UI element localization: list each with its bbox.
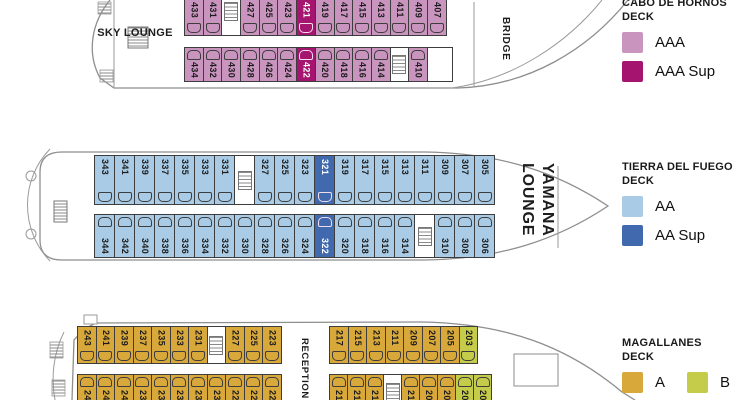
bed-icon bbox=[338, 192, 352, 202]
cabin-number: 209 bbox=[408, 330, 417, 346]
cabin-number: 411 bbox=[395, 2, 404, 18]
bed-icon bbox=[265, 351, 279, 361]
cabin-430: 430 bbox=[221, 47, 241, 82]
cabin-number: 206 bbox=[442, 390, 451, 400]
legend-tierra-del-fuego-deck: TIERRA DEL FUEGO DECK AA AA Sup bbox=[622, 160, 750, 246]
bed-icon bbox=[135, 351, 149, 361]
cabin-344: 344 bbox=[94, 214, 115, 258]
cabin-313: 313 bbox=[394, 155, 415, 205]
legend-title-line2: DECK bbox=[622, 11, 654, 23]
bed-icon bbox=[478, 217, 492, 227]
cabin-number: 213 bbox=[371, 330, 380, 346]
ship-deck-plan: 433431427425423421419417415413411409407 … bbox=[0, 0, 750, 400]
bed-icon bbox=[458, 217, 472, 227]
cabin-422: 422 bbox=[296, 47, 316, 82]
cabin-number: 234 bbox=[175, 390, 184, 400]
bed-icon bbox=[172, 351, 186, 361]
cabin-212: 212 bbox=[365, 374, 384, 400]
cabin-433: 433 bbox=[184, 0, 204, 36]
bed-icon bbox=[299, 50, 313, 60]
cabo-deck-port-cabin-row: 433431427425423421419417415413411409407 bbox=[185, 0, 447, 36]
legend-magallanes-deck: MAGALLANES DECK A B bbox=[622, 336, 750, 393]
cabin-number: 422 bbox=[301, 62, 310, 78]
bed-icon bbox=[368, 377, 382, 387]
cabin-231: 231 bbox=[188, 326, 208, 364]
cabin-307: 307 bbox=[454, 155, 475, 205]
cabin-number: 204 bbox=[460, 390, 469, 400]
cabin-321: 321 bbox=[314, 155, 335, 205]
bed-icon bbox=[350, 377, 364, 387]
cabin-230: 230 bbox=[207, 374, 227, 400]
cabin-number: 414 bbox=[376, 62, 385, 78]
bed-icon bbox=[178, 217, 192, 227]
cabin-number: 208 bbox=[424, 390, 433, 400]
cabin-241: 241 bbox=[96, 326, 116, 364]
stairs-icon bbox=[392, 55, 406, 74]
bed-icon bbox=[228, 377, 242, 387]
cabin-217: 217 bbox=[329, 326, 349, 364]
cabin-225: 225 bbox=[244, 326, 264, 364]
cabin-340: 340 bbox=[134, 214, 155, 258]
cabin-331: 331 bbox=[214, 155, 235, 205]
cabin-326: 326 bbox=[274, 214, 295, 258]
cabin-318: 318 bbox=[354, 214, 375, 258]
cabin-339: 339 bbox=[134, 155, 155, 205]
cabin-number: 211 bbox=[390, 330, 399, 346]
cabin-number: 324 bbox=[300, 238, 309, 254]
cabin-number: 306 bbox=[480, 238, 489, 254]
magallanes-deck-port-cabin-row-fwd: 217215213211209207205203 bbox=[330, 326, 478, 364]
legend-title-line2: DECK bbox=[622, 175, 654, 187]
cabin-323: 323 bbox=[294, 155, 315, 205]
bed-icon bbox=[374, 23, 388, 33]
bed-icon bbox=[187, 23, 201, 33]
cabin-327: 327 bbox=[254, 155, 275, 205]
legend-entry-aa-sup: AA Sup bbox=[622, 225, 750, 246]
cabin-number: 423 bbox=[283, 2, 292, 18]
cabin-208: 208 bbox=[419, 374, 438, 400]
cabin-number: 230 bbox=[212, 390, 221, 400]
cabin-203: 203 bbox=[459, 326, 479, 364]
bed-icon bbox=[198, 192, 212, 202]
bed-icon bbox=[443, 351, 457, 361]
cabin-number: 431 bbox=[208, 2, 217, 18]
cabin-431: 431 bbox=[203, 0, 223, 36]
cabin-426: 426 bbox=[259, 47, 279, 82]
color-swatch-aaa bbox=[622, 32, 643, 53]
bed-icon bbox=[336, 23, 350, 33]
bed-icon bbox=[318, 50, 332, 60]
cabin-number: 309 bbox=[440, 159, 449, 175]
cabin-number: 420 bbox=[320, 62, 329, 78]
sky-lounge-label: SKY LOUNGE bbox=[96, 27, 174, 39]
cabin-number: 227 bbox=[230, 330, 239, 346]
cabin-number: 428 bbox=[245, 62, 254, 78]
stern-stairs-icon bbox=[100, 70, 113, 82]
cabin-number: 235 bbox=[156, 330, 165, 346]
bed-icon bbox=[461, 351, 475, 361]
bed-icon bbox=[209, 377, 223, 387]
legend-title: TIERRA DEL FUEGO DECK bbox=[622, 160, 750, 188]
bed-icon bbox=[117, 377, 131, 387]
cabin-number: 313 bbox=[400, 159, 409, 175]
cabin-number: 318 bbox=[360, 238, 369, 254]
bed-icon bbox=[80, 351, 94, 361]
color-swatch-aa-sup bbox=[622, 225, 643, 246]
cabin-number: 331 bbox=[220, 159, 229, 175]
bed-icon bbox=[228, 351, 242, 361]
cabin-number: 210 bbox=[406, 390, 415, 400]
color-swatch-a bbox=[622, 372, 643, 393]
cabin-number: 334 bbox=[200, 238, 209, 254]
cabin-number: 216 bbox=[334, 390, 343, 400]
bed-icon bbox=[318, 192, 332, 202]
reception-label: RECEPTION bbox=[299, 338, 310, 400]
cabin-214: 214 bbox=[347, 374, 366, 400]
bed-icon bbox=[440, 377, 454, 387]
cabin-308: 308 bbox=[454, 214, 475, 258]
cabin-211: 211 bbox=[385, 326, 405, 364]
cabin-number: 310 bbox=[440, 238, 449, 254]
cabin-423: 423 bbox=[277, 0, 297, 36]
bed-icon bbox=[172, 377, 186, 387]
magallanes-deck-port-cabin-row-aft: 243241239237235233231227225223 bbox=[78, 326, 282, 364]
color-swatch-b bbox=[687, 372, 708, 393]
cabin-number: 421 bbox=[301, 2, 310, 18]
legend-title-line1: MAGALLANES bbox=[622, 337, 702, 349]
cabin-number: 236 bbox=[156, 390, 165, 400]
bed-icon bbox=[355, 23, 369, 33]
cabin-409: 409 bbox=[408, 0, 428, 36]
cabin-number: 335 bbox=[180, 159, 189, 175]
tierra-deck-port-cabin-row: 3433413393373353333313273253233213193173… bbox=[95, 155, 495, 205]
bed-icon bbox=[278, 217, 292, 227]
bed-icon bbox=[118, 192, 132, 202]
cabin-number: 217 bbox=[334, 330, 343, 346]
bed-icon bbox=[411, 50, 425, 60]
cabin-number: 330 bbox=[240, 238, 249, 254]
cabo-deck-starboard-cabin-row: 434432430428426424422420418416414410 bbox=[185, 47, 453, 82]
cabin-number: 214 bbox=[352, 390, 361, 400]
cabin-416: 416 bbox=[352, 47, 372, 82]
cabin-234: 234 bbox=[170, 374, 190, 400]
cabin-238: 238 bbox=[133, 374, 153, 400]
cabin-number: 432 bbox=[208, 62, 217, 78]
cabin-number: 315 bbox=[380, 159, 389, 175]
bed-icon bbox=[299, 23, 313, 33]
cabin-320: 320 bbox=[334, 214, 355, 258]
bed-icon bbox=[138, 217, 152, 227]
cabin-411: 411 bbox=[390, 0, 410, 36]
bed-icon bbox=[246, 351, 260, 361]
legend-title: MAGALLANES DECK bbox=[622, 336, 750, 364]
cabin-number: 240 bbox=[119, 390, 128, 400]
bed-icon bbox=[206, 23, 220, 33]
cabin-number: 215 bbox=[353, 330, 362, 346]
cabin-number: 430 bbox=[227, 62, 236, 78]
cabin-number: 241 bbox=[101, 330, 110, 346]
cabin-number: 205 bbox=[445, 330, 454, 346]
cabin-424: 424 bbox=[277, 47, 297, 82]
bed-icon bbox=[438, 217, 452, 227]
magallanes-deck-starboard-cabin-row-fwd: 216214212210208206204202 bbox=[330, 374, 492, 400]
bed-icon bbox=[262, 23, 276, 33]
stairs-cell bbox=[234, 155, 255, 205]
cabin-310: 310 bbox=[434, 214, 455, 258]
cabin-number: 434 bbox=[189, 62, 198, 78]
legend-title-line1: CABO DE HORNOS bbox=[622, 0, 727, 9]
stairs-cell bbox=[390, 47, 410, 82]
cabin-number: 426 bbox=[264, 62, 273, 78]
bed-icon bbox=[355, 50, 369, 60]
cabin-242: 242 bbox=[96, 374, 116, 400]
bed-icon bbox=[430, 23, 444, 33]
bed-icon bbox=[238, 217, 252, 227]
cabin-210: 210 bbox=[401, 374, 420, 400]
cabin-332: 332 bbox=[214, 214, 235, 258]
cabin-334: 334 bbox=[194, 214, 215, 258]
cabin-306: 306 bbox=[474, 214, 495, 258]
bed-icon bbox=[478, 192, 492, 202]
bed-icon bbox=[178, 192, 192, 202]
cabin-341: 341 bbox=[114, 155, 135, 205]
cabin-number: 237 bbox=[138, 330, 147, 346]
cabin-215: 215 bbox=[348, 326, 368, 364]
bed-icon bbox=[476, 377, 490, 387]
cabin-number: 320 bbox=[340, 238, 349, 254]
bed-icon bbox=[98, 351, 112, 361]
bed-icon bbox=[158, 217, 172, 227]
stairs-cell bbox=[414, 214, 435, 258]
cabin-number: 416 bbox=[358, 62, 367, 78]
cabin-number: 427 bbox=[245, 2, 254, 18]
cabin-number: 433 bbox=[189, 2, 198, 18]
bed-icon bbox=[218, 217, 232, 227]
bed-icon bbox=[117, 351, 131, 361]
cabin-number: 238 bbox=[138, 390, 147, 400]
yamana-lounge-label: LOUNGE YAMANA bbox=[518, 163, 556, 251]
cabin-235: 235 bbox=[151, 326, 171, 364]
cabin-325: 325 bbox=[274, 155, 295, 205]
cabin-number: 314 bbox=[400, 238, 409, 254]
bed-icon bbox=[154, 351, 168, 361]
bed-icon bbox=[258, 192, 272, 202]
cabin-207: 207 bbox=[422, 326, 442, 364]
cabin-239: 239 bbox=[114, 326, 134, 364]
cabin-420: 420 bbox=[315, 47, 335, 82]
cabin-number: 344 bbox=[100, 238, 109, 254]
cabin-333: 333 bbox=[194, 155, 215, 205]
bed-icon bbox=[424, 351, 438, 361]
cabin-328: 328 bbox=[254, 214, 275, 258]
empty-room bbox=[427, 47, 453, 82]
bed-icon bbox=[243, 23, 257, 33]
bed-icon bbox=[418, 192, 432, 202]
cabin-number: 409 bbox=[414, 2, 423, 18]
bed-icon bbox=[369, 351, 383, 361]
bed-icon bbox=[262, 50, 276, 60]
cabin-213: 213 bbox=[366, 326, 386, 364]
bed-icon bbox=[298, 192, 312, 202]
cabin-232: 232 bbox=[188, 374, 208, 400]
legend-entry-aaa: AAA bbox=[622, 32, 750, 53]
cabin-number: 225 bbox=[249, 330, 258, 346]
legend-label-b: B bbox=[720, 374, 730, 391]
cabin-330: 330 bbox=[234, 214, 255, 258]
bed-icon bbox=[438, 192, 452, 202]
cabin-number: 321 bbox=[320, 159, 329, 175]
legend-entry-a: A bbox=[622, 372, 665, 393]
stairs-cell bbox=[383, 374, 402, 400]
stairs-icon bbox=[224, 2, 238, 21]
cabin-number: 342 bbox=[120, 238, 129, 254]
cabin-204: 204 bbox=[455, 374, 474, 400]
cabin-324: 324 bbox=[294, 214, 315, 258]
cabin-number: 424 bbox=[283, 62, 292, 78]
magallanes-deck-starboard-cabin-row-aft: 244242240238236234232230228226224 bbox=[78, 374, 282, 400]
cabin-226: 226 bbox=[244, 374, 264, 400]
cabin-427: 427 bbox=[240, 0, 260, 36]
bed-icon bbox=[191, 377, 205, 387]
bed-icon bbox=[398, 192, 412, 202]
bed-icon bbox=[332, 377, 346, 387]
color-swatch-aa bbox=[622, 196, 643, 217]
cabin-number: 317 bbox=[360, 159, 369, 175]
cabin-number: 413 bbox=[376, 2, 385, 18]
bed-icon bbox=[138, 192, 152, 202]
legend-title-line1: TIERRA DEL FUEGO bbox=[622, 161, 733, 173]
cabin-343: 343 bbox=[94, 155, 115, 205]
legend-label-a: A bbox=[655, 374, 665, 391]
cabin-314: 314 bbox=[394, 214, 415, 258]
cabin-342: 342 bbox=[114, 214, 135, 258]
cabin-number: 308 bbox=[460, 238, 469, 254]
cabin-number: 316 bbox=[380, 238, 389, 254]
bed-icon bbox=[406, 351, 420, 361]
stairs-icon bbox=[418, 227, 432, 246]
cabin-number: 322 bbox=[320, 238, 329, 254]
cabin-number: 339 bbox=[140, 159, 149, 175]
cabin-number: 327 bbox=[260, 159, 269, 175]
cabin-number: 233 bbox=[175, 330, 184, 346]
cabin-413: 413 bbox=[371, 0, 391, 36]
bed-icon bbox=[374, 50, 388, 60]
cabin-number: 319 bbox=[340, 159, 349, 175]
bed-icon bbox=[458, 377, 472, 387]
bed-icon bbox=[258, 217, 272, 227]
bed-icon bbox=[280, 23, 294, 33]
cabin-417: 417 bbox=[334, 0, 354, 36]
cabin-227: 227 bbox=[225, 326, 245, 364]
cabin-316: 316 bbox=[374, 214, 395, 258]
cabin-number: 226 bbox=[249, 390, 258, 400]
cabin-202: 202 bbox=[473, 374, 492, 400]
cabin-322: 322 bbox=[314, 214, 335, 258]
bed-icon bbox=[392, 23, 406, 33]
cabin-240: 240 bbox=[114, 374, 134, 400]
cabin-415: 415 bbox=[352, 0, 372, 36]
legend-label-aaa: AAA bbox=[655, 34, 685, 51]
cabin-number: 243 bbox=[82, 330, 91, 346]
stairs-cell bbox=[207, 326, 227, 364]
cabin-425: 425 bbox=[259, 0, 279, 36]
legend-label-aa-sup: AA Sup bbox=[655, 227, 705, 244]
bed-icon bbox=[135, 377, 149, 387]
cabin-317: 317 bbox=[354, 155, 375, 205]
cabin-number: 341 bbox=[120, 159, 129, 175]
bed-icon bbox=[98, 377, 112, 387]
bed-icon bbox=[338, 217, 352, 227]
cabin-number: 305 bbox=[480, 159, 489, 175]
bed-icon bbox=[98, 217, 112, 227]
bed-icon bbox=[298, 217, 312, 227]
cabin-224: 224 bbox=[262, 374, 282, 400]
cabin-337: 337 bbox=[154, 155, 175, 205]
cabin-418: 418 bbox=[334, 47, 354, 82]
cabin-number: 425 bbox=[264, 2, 273, 18]
cabin-228: 228 bbox=[225, 374, 245, 400]
cabin-number: 332 bbox=[220, 238, 229, 254]
legend-entry-aaa-sup: AAA Sup bbox=[622, 61, 750, 82]
cabin-number: 417 bbox=[339, 2, 348, 18]
cabin-number: 228 bbox=[230, 390, 239, 400]
cabin-319: 319 bbox=[334, 155, 355, 205]
stern-stairs-icon bbox=[50, 342, 63, 358]
bed-icon bbox=[187, 50, 201, 60]
stairs-cell bbox=[221, 0, 241, 36]
bed-icon bbox=[378, 192, 392, 202]
bed-icon bbox=[206, 50, 220, 60]
bed-icon bbox=[158, 192, 172, 202]
cabin-number: 340 bbox=[140, 238, 149, 254]
cabin-410: 410 bbox=[408, 47, 428, 82]
cabin-244: 244 bbox=[77, 374, 97, 400]
cabin-number: 242 bbox=[101, 390, 110, 400]
bed-icon bbox=[280, 50, 294, 60]
bed-icon bbox=[318, 217, 332, 227]
legend-title-line2: DECK bbox=[622, 351, 654, 363]
bed-icon bbox=[336, 50, 350, 60]
cabin-237: 237 bbox=[133, 326, 153, 364]
stern-stairs-icon bbox=[98, 2, 111, 14]
cabin-336: 336 bbox=[174, 214, 195, 258]
bed-icon bbox=[387, 351, 401, 361]
cabin-number: 311 bbox=[420, 159, 429, 175]
cabin-407: 407 bbox=[427, 0, 447, 36]
cabin-number: 343 bbox=[100, 159, 109, 175]
bed-icon bbox=[218, 192, 232, 202]
cabin-number: 307 bbox=[460, 159, 469, 175]
bed-icon bbox=[246, 377, 260, 387]
bed-icon bbox=[191, 351, 205, 361]
cabin-number: 419 bbox=[320, 2, 329, 18]
bed-icon bbox=[332, 351, 346, 361]
cabin-number: 325 bbox=[280, 159, 289, 175]
bed-icon bbox=[318, 23, 332, 33]
bed-icon bbox=[404, 377, 418, 387]
legend-entry-b: B bbox=[687, 372, 730, 393]
cabin-number: 207 bbox=[427, 330, 436, 346]
cabin-421: 421 bbox=[296, 0, 316, 36]
bed-icon bbox=[398, 217, 412, 227]
cabin-number: 338 bbox=[160, 238, 169, 254]
cabin-number: 326 bbox=[280, 238, 289, 254]
bridge-label: BRIDGE bbox=[500, 17, 511, 87]
bed-icon bbox=[411, 23, 425, 33]
cabin-311: 311 bbox=[414, 155, 435, 205]
cabin-number: 202 bbox=[478, 390, 487, 400]
cabin-305: 305 bbox=[474, 155, 495, 205]
